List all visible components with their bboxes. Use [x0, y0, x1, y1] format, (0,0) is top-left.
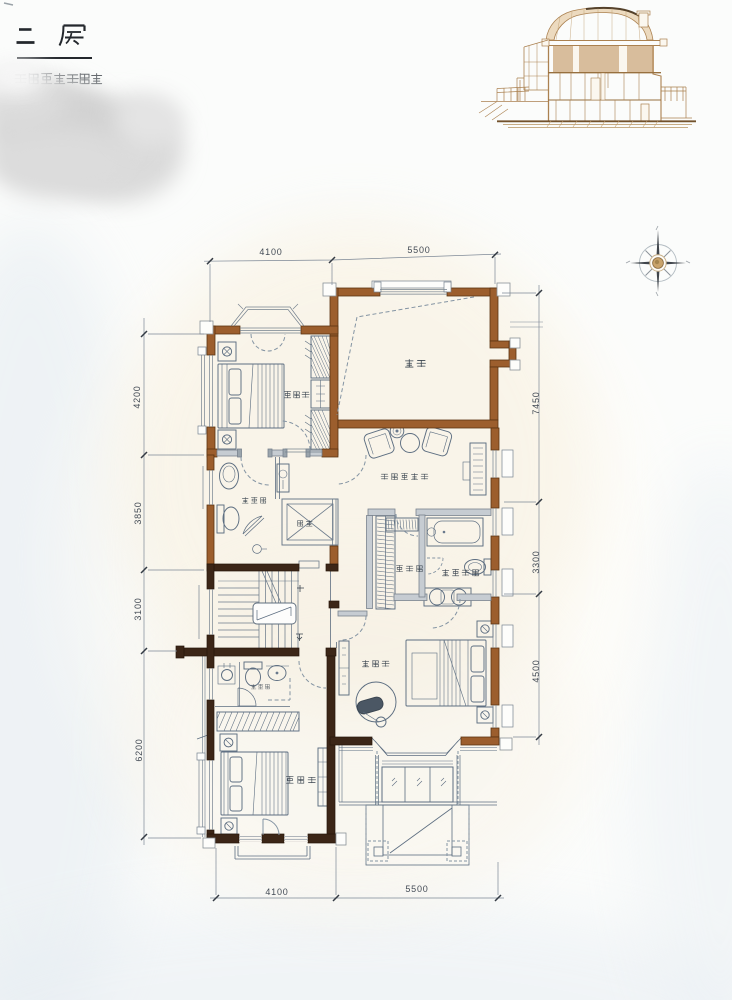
svg-text:4100: 4100 — [265, 887, 288, 897]
svg-text:7450: 7450 — [531, 391, 541, 414]
svg-text:5500: 5500 — [407, 245, 430, 255]
svg-text:6200: 6200 — [134, 738, 144, 761]
svg-text:4500: 4500 — [531, 659, 541, 682]
svg-text:3300: 3300 — [531, 550, 541, 573]
svg-text:4100: 4100 — [259, 247, 282, 257]
svg-text:3100: 3100 — [133, 597, 143, 620]
svg-text:4200: 4200 — [132, 385, 142, 408]
svg-text:5500: 5500 — [405, 884, 428, 894]
svg-text:3850: 3850 — [133, 501, 143, 524]
